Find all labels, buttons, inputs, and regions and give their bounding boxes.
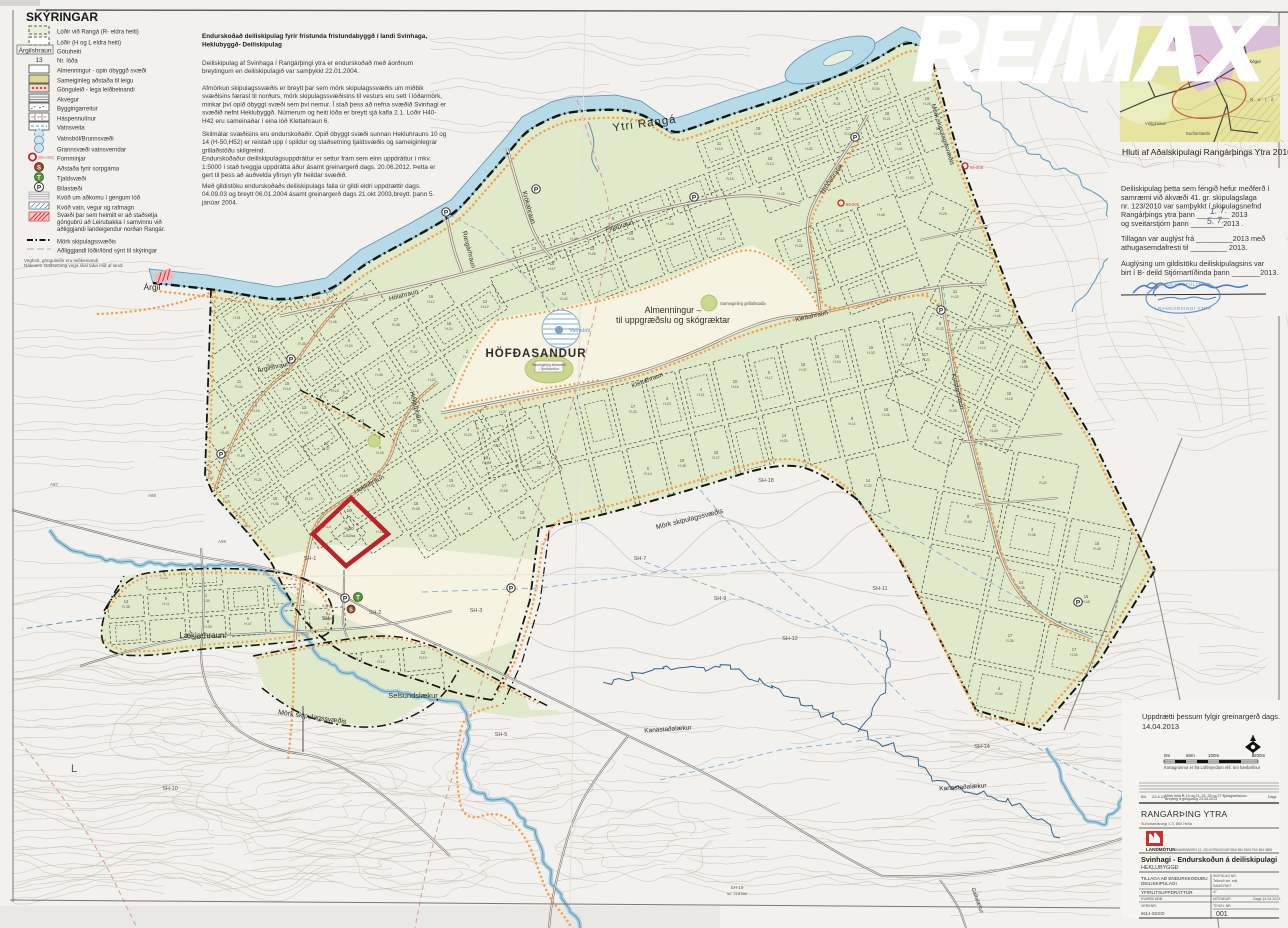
svg-text:12: 12 <box>532 246 537 251</box>
svg-text:SH-18: SH-18 <box>758 478 774 484</box>
svg-text:16: 16 <box>447 321 452 326</box>
svg-text:A88: A88 <box>218 539 227 544</box>
svg-text:H-16: H-16 <box>731 385 738 389</box>
svg-text:Vatnsból/Brunnsvæði: Vatnsból/Brunnsvæði <box>57 136 114 143</box>
svg-text:R-23: R-23 <box>269 433 276 437</box>
svg-text:SH-14: SH-14 <box>974 744 990 750</box>
svg-text:17: 17 <box>495 438 500 443</box>
svg-text:A88: A88 <box>148 493 157 498</box>
svg-text:P: P <box>37 185 42 192</box>
svg-text:R-18: R-18 <box>500 489 507 493</box>
svg-text:16: 16 <box>1095 541 1100 546</box>
svg-text:13: 13 <box>35 57 43 64</box>
svg-text:H-29: H-29 <box>527 436 534 440</box>
svg-text:H-32: H-32 <box>867 351 874 355</box>
svg-text:R-34: R-34 <box>872 87 879 91</box>
svg-text:H-33: H-33 <box>1070 653 1077 657</box>
svg-text:5. 7.: 5. 7. <box>1206 215 1224 226</box>
svg-text:VERKNR.: VERKNR. <box>1141 904 1157 908</box>
svg-text:14: 14 <box>252 334 257 339</box>
svg-text:Suðurlandsvegi 1-3, 850 Hella: Suðurlandsvegi 1-3, 850 Hella <box>1141 821 1193 826</box>
svg-text:11: 11 <box>953 289 958 294</box>
svg-text:R-19: R-19 <box>419 656 426 660</box>
svg-text:R-32: R-32 <box>936 327 943 331</box>
svg-text:17: 17 <box>1008 633 1013 638</box>
svg-text:16: 16 <box>714 450 719 455</box>
svg-text:Árgil: Árgil <box>143 282 160 292</box>
svg-text:Vatnsveita: Vatnsveita <box>57 126 85 132</box>
svg-text:R-13: R-13 <box>766 162 773 166</box>
svg-text:R-48: R-48 <box>392 323 399 327</box>
svg-text:R-38: R-38 <box>122 605 129 609</box>
svg-text:Árgilshraun: Árgilshraun <box>19 46 52 55</box>
svg-text:Lækjarhraun:: Lækjarhraun: <box>179 631 226 640</box>
svg-text:14: 14 <box>562 291 567 296</box>
svg-text:SH-3: SH-3 <box>470 608 483 614</box>
svg-text:H-36: H-36 <box>271 502 278 506</box>
svg-text:R-14: R-14 <box>644 472 651 476</box>
svg-text:Grannsvæði vatnsverndar: Grannsvæði vatnsverndar <box>57 147 126 154</box>
svg-text:grillaðstöðu skilgreind.: grillaðstöðu skilgreind. <box>202 146 265 154</box>
svg-text:R-18: R-18 <box>283 387 290 391</box>
svg-text:H-40: H-40 <box>990 429 997 433</box>
svg-text:Kvöð um aðkomu í gengum lóð: Kvöð um aðkomu í gengum lóð <box>57 195 141 202</box>
svg-text:16: 16 <box>795 111 800 116</box>
svg-text:S: S <box>349 608 353 614</box>
svg-text:R-32: R-32 <box>864 484 871 488</box>
svg-text:Mörk skipulagssvæðis: Mörk skipulagssvæðis <box>57 239 116 246</box>
svg-text:H-33: H-33 <box>204 625 211 629</box>
svg-text:og sveitarstjórn þann _____: og sveitarstjórn þann ________2013 . <box>1121 219 1244 228</box>
svg-text:Nákvæm staðsetning vega skal t: Nákvæm staðsetning vega skal taka mið af… <box>24 262 123 268</box>
svg-text:R-11: R-11 <box>844 132 851 136</box>
svg-text:H-47: H-47 <box>244 622 251 626</box>
svg-text:R-27: R-27 <box>712 456 719 460</box>
svg-text:H-15: H-15 <box>1005 397 1012 401</box>
svg-text:(99-008): (99-008) <box>38 155 55 160</box>
svg-text:14: 14 <box>874 81 879 86</box>
svg-text:17: 17 <box>728 171 733 176</box>
svg-text:H-32: H-32 <box>805 147 812 151</box>
svg-text:11: 11 <box>237 379 242 384</box>
svg-text:HÖFÐASANDUR: HÖFÐASANDUR <box>485 347 586 360</box>
svg-text:11: 11 <box>797 238 802 243</box>
svg-text:H-24: H-24 <box>922 358 929 362</box>
svg-text:12: 12 <box>995 308 1000 313</box>
svg-text:H-37: H-37 <box>499 410 506 414</box>
svg-text:001: 001 <box>1216 911 1228 918</box>
svg-text:H-45: H-45 <box>376 451 383 455</box>
svg-text:17: 17 <box>1072 647 1077 652</box>
svg-text:janúar 2004.: janúar 2004. <box>201 199 238 206</box>
svg-text:Svæði þar sem heimilt er að st: Svæði þar sem heimilt er að staðsetja <box>57 212 158 219</box>
svg-text:H-26: H-26 <box>882 413 889 417</box>
svg-text:R-42: R-42 <box>235 385 242 389</box>
svg-text:A87: A87 <box>50 482 59 487</box>
svg-text:H-41: H-41 <box>895 147 902 151</box>
svg-text:14: 14 <box>866 478 871 483</box>
svg-text:RANGÁRÞING YTRA: RANGÁRÞING YTRA <box>1141 809 1228 819</box>
svg-text:15: 15 <box>449 478 454 483</box>
svg-text:SH-7: SH-7 <box>634 556 647 562</box>
svg-text:04.09.03 og breytt 06.01.2004: 04.09.03 og breytt 06.01.2004 ásamt grei… <box>202 190 435 198</box>
svg-text:gert til þess að auðvelda yfir: gert til þess að auðvelda yfirsyn yfir h… <box>202 171 347 179</box>
svg-text:Háspennulínur: Háspennulínur <box>57 117 96 123</box>
svg-text:Tjaldsvæði: Tjaldsvæði <box>57 176 86 183</box>
svg-text:14 (H-50,H52) er reistað upp í: 14 (H-50,H52) er reistað upp í spildur o… <box>202 138 438 146</box>
svg-text:svæðið nefnt Heklubyggð. Númer: svæðið nefnt Heklubyggð. Númerum og heit… <box>202 109 436 117</box>
svg-text:Almenningur –: Almenningur – <box>645 305 702 315</box>
svg-text:Sameiginleg aðstaða til leigu: Sameiginleg aðstaða til leigu <box>57 78 133 85</box>
svg-text:Uppdrætti þessum fylgir greina: Uppdrætti þessum fylgir greinargerð dags… <box>1142 712 1280 721</box>
svg-text:SAMSYNKT: SAMSYNKT <box>1213 884 1232 888</box>
svg-text:R-25: R-25 <box>939 212 946 216</box>
svg-text:H-17: H-17 <box>548 267 555 271</box>
svg-text:Heklubyggð- Deiliskipulag: Heklubyggð- Deiliskipulag <box>202 40 282 48</box>
svg-text:0,8ha: 0,8ha <box>322 603 333 608</box>
svg-text:SH-12: SH-12 <box>782 636 798 642</box>
svg-text:H-48: H-48 <box>1082 600 1089 604</box>
svg-text:L: L <box>71 763 77 775</box>
svg-text:SH-19: SH-19 <box>731 885 744 890</box>
svg-text:Auglýsing um gildistöku deilis: Auglýsing um gildistöku deiliskipulagsin… <box>1121 259 1265 268</box>
svg-text:H-20: H-20 <box>780 439 787 443</box>
svg-text:Gönguleið - lega leiðbeinandi: Gönguleið - lega leiðbeinandi <box>57 87 135 94</box>
svg-text:B4: B4 <box>1141 794 1147 799</box>
svg-text:18: 18 <box>884 407 889 412</box>
svg-text:H-48: H-48 <box>666 222 673 226</box>
svg-text:athugasemdafresti til ________: athugasemdafresti til _________ 2013. <box>1121 243 1247 252</box>
svg-text:Lóðir (H og L eldra heiti): Lóðir (H og L eldra heiti) <box>57 40 121 47</box>
svg-text:R-36: R-36 <box>1006 639 1013 643</box>
svg-text:H-24: H-24 <box>345 344 352 348</box>
svg-text:H-32: H-32 <box>951 295 958 299</box>
svg-text:T: T <box>356 596 360 602</box>
svg-text:H-20: H-20 <box>447 484 454 488</box>
svg-text:Dags: Dags <box>1268 795 1277 799</box>
svg-text:H-18: H-18 <box>393 401 400 405</box>
svg-text:1:5000 í stað tveggja uppdrát: 1:5000 í stað tveggja uppdrátta áður ása… <box>202 163 436 171</box>
svg-text:Kortagrunnur er frá Loftmyndum: Kortagrunnur er frá Loftmyndum ehf. 5m h… <box>1164 765 1261 770</box>
svg-text:R-43: R-43 <box>221 431 228 435</box>
svg-text:T: T <box>37 176 41 182</box>
svg-text:Aðstaða fyrir sorpgáma: Aðstaða fyrir sorpgáma <box>57 166 120 173</box>
svg-text:R-30: R-30 <box>836 229 843 233</box>
svg-text:R-20: R-20 <box>629 410 636 414</box>
svg-text:R-35: R-35 <box>934 441 941 445</box>
svg-text:H-14: H-14 <box>833 360 840 364</box>
svg-text:200m: 200m <box>1254 753 1266 758</box>
svg-text:H-11: H-11 <box>162 602 169 606</box>
svg-text:H-21: H-21 <box>697 393 704 397</box>
svg-text:TEIKN. NR: TEIKN. NR <box>1213 904 1231 908</box>
svg-text:R-34: R-34 <box>995 692 1002 696</box>
svg-text:Bílastæði: Bílastæði <box>57 186 82 193</box>
svg-text:15: 15 <box>835 354 840 359</box>
svg-text:úT: úT <box>1213 890 1217 894</box>
svg-text:H-22: H-22 <box>428 378 435 382</box>
svg-text:R-15: R-15 <box>331 389 338 393</box>
svg-text:18: 18 <box>1022 359 1027 364</box>
svg-text:10: 10 <box>733 379 738 384</box>
svg-text:R-15: R-15 <box>726 177 733 181</box>
svg-text:15: 15 <box>756 126 761 131</box>
svg-text:H-11: H-11 <box>848 422 855 426</box>
svg-text:18: 18 <box>885 111 890 116</box>
svg-text:H-23: H-23 <box>663 402 670 406</box>
svg-text:14: 14 <box>782 433 787 438</box>
svg-text:23.4.13: 23.4.13 <box>1152 794 1166 799</box>
svg-text:Selsundslækur: Selsundslækur <box>388 691 438 700</box>
svg-text:Tillagan var auglýst frá _____: Tillagan var auglýst frá _________2013 m… <box>1121 234 1265 243</box>
svg-text:P: P <box>219 451 224 458</box>
svg-text:12: 12 <box>537 460 542 465</box>
svg-text:H42 eru sameinaðar í eina lóð: H42 eru sameinaðar í eina lóð Klettahrau… <box>202 117 329 125</box>
svg-text:H-16: H-16 <box>252 409 259 413</box>
svg-text:H-46: H-46 <box>877 213 884 217</box>
svg-text:H-44: H-44 <box>793 117 800 121</box>
svg-text:R-12: R-12 <box>377 660 384 664</box>
svg-text:R-28: R-28 <box>254 478 261 482</box>
svg-text:Nr. lóða: Nr. lóða <box>57 58 78 65</box>
svg-text:Aðliggjandi lóðir/lönd sýnt ti: Aðliggjandi lóðir/lönd sýnt til skýringa… <box>57 248 157 255</box>
svg-text:R-31: R-31 <box>627 237 634 241</box>
svg-text:R-21: R-21 <box>883 117 890 121</box>
svg-text:R-38: R-38 <box>298 342 305 346</box>
svg-text:Teiknuð sbr. mkl: Teiknuð sbr. mkl <box>1213 878 1238 883</box>
svg-text:12: 12 <box>483 299 488 304</box>
svg-text:Rangárþings ytra þann ________: Rangárþings ytra þann ________ 2013 <box>1121 210 1248 219</box>
svg-text:R-28: R-28 <box>412 507 419 511</box>
svg-text:18: 18 <box>550 261 555 266</box>
svg-text:10: 10 <box>346 508 352 513</box>
svg-text:H-17: H-17 <box>765 376 772 380</box>
svg-text:10: 10 <box>324 441 329 446</box>
svg-text:P: P <box>692 194 697 201</box>
svg-text:R-39: R-39 <box>237 454 244 458</box>
svg-text:17: 17 <box>631 404 636 409</box>
svg-text:KVARÐI AÐB: KVARÐI AÐB <box>1141 897 1163 901</box>
svg-text:LANDMÓTUN: LANDMÓTUN <box>1146 845 1176 852</box>
svg-text:14: 14 <box>124 599 129 604</box>
svg-text:H-15: H-15 <box>715 147 722 151</box>
svg-text:R-19: R-19 <box>305 497 312 501</box>
svg-text:Almenningur - opin óbyggð svæð: Almenningur - opin óbyggð svæði <box>57 68 146 75</box>
svg-text:H-42: H-42 <box>560 297 567 301</box>
svg-text:13: 13 <box>590 246 595 251</box>
svg-text:Vatnsból: Vatnsból <box>569 328 590 334</box>
svg-text:R-32: R-32 <box>410 350 417 354</box>
svg-text:P: P <box>343 595 348 602</box>
svg-text:Svinhagi - Endurskoðun á deili: Svinhagi - Endurskoðun á deiliskipulagi <box>1141 855 1277 864</box>
svg-text:H-19: H-19 <box>340 474 347 478</box>
svg-text:MÓTAÐUR: MÓTAÐUR <box>1213 896 1231 901</box>
svg-text:Götuheiti: Götuheiti <box>57 50 81 56</box>
svg-text:99-005: 99-005 <box>846 202 860 207</box>
svg-text:H-46: H-46 <box>329 320 336 324</box>
svg-text:R-45: R-45 <box>588 252 595 256</box>
svg-text:Afmörkun skipulagssvæðis er br: Afmörkun skipulagssvæðis er breytt þar s… <box>202 84 424 92</box>
svg-text:13: 13 <box>302 405 307 410</box>
svg-text:DEILISKIPULAGI: DEILISKIPULAGI <box>1141 881 1177 886</box>
svg-text:Endurskoðað deiliskipulag fyri: Endurskoðað deiliskipulag fyrir fristund… <box>202 32 427 40</box>
svg-text:17: 17 <box>394 317 399 322</box>
svg-text:15: 15 <box>980 340 985 345</box>
svg-text:samræmi við ákvæði 41. gr. ski: samræmi við ákvæði 41. gr. skipulagslaga <box>1121 193 1258 202</box>
svg-text:Kvöð vatn, vegur og rafmagn: Kvöð vatn, vegur og rafmagn <box>57 205 134 212</box>
svg-text:P: P <box>444 209 449 216</box>
svg-text:Skilmálar svæðisins eru endurs: Skilmálar svæðisins eru endurskoðaðir. O… <box>202 130 447 138</box>
svg-text:H-22: H-22 <box>465 512 472 516</box>
svg-text:SH-2: SH-2 <box>369 610 382 616</box>
svg-text:R-20: R-20 <box>464 433 471 437</box>
svg-text:17: 17 <box>225 494 230 499</box>
svg-text:R-37: R-37 <box>754 132 761 136</box>
svg-text:HEKLUBYGGÐ: HEKLUBYGGÐ <box>1141 865 1179 871</box>
svg-text:11: 11 <box>992 423 997 428</box>
svg-text:aðliggjandi landeigendur norða: aðliggjandi landeigendur norðan Rangár. <box>57 226 165 233</box>
svg-text:S: S <box>37 166 41 172</box>
svg-text:14: 14 <box>1019 580 1024 585</box>
svg-text:H-37: H-37 <box>799 368 806 372</box>
svg-text:breytingum en deiliskipulagið: breytingum en deiliskipulagið var samþyk… <box>202 67 359 75</box>
svg-text:SH-5: SH-5 <box>495 732 508 738</box>
svg-text:Akvegur: Akvegur <box>57 98 79 104</box>
svg-text:P: P <box>289 356 294 363</box>
svg-text:Breyting á göngustíg 23.04.201: Breyting á göngustíg 23.04.2013 <box>1165 797 1217 801</box>
svg-text:H-10: H-10 <box>411 429 418 433</box>
svg-text:16: 16 <box>801 362 806 367</box>
svg-text:göngubrú að Leirubakka í samvi: göngubrú að Leirubakka í samvinnu við <box>57 219 162 226</box>
svg-text:Hluti af Aðalskipulagi Rangárþ: Hluti af Aðalskipulagi Rangárþings Ytra … <box>1122 147 1288 157</box>
svg-text:Með gildistöku endurskoðaðs de: Með gildistöku endurskoðaðs deiliskipula… <box>202 182 421 190</box>
svg-text:til uppgræðslu og skógræktar: til uppgræðslu og skógræktar <box>616 315 730 325</box>
svg-text:H-39: H-39 <box>429 534 436 538</box>
svg-text:lnr. 218366: lnr. 218366 <box>727 891 748 896</box>
svg-text:Sameiginleg grillaðstaða: Sameiginleg grillaðstaða <box>720 301 766 306</box>
svg-text:6614-SDXID: 6614-SDXID <box>1141 911 1165 916</box>
svg-text:H-46: H-46 <box>518 516 525 520</box>
svg-text:- Íþróttavöllur: - Íþróttavöllur <box>539 367 560 371</box>
svg-text:H-14: H-14 <box>978 346 985 350</box>
svg-text:SKIPULAG NR.: SKIPULAG NR. <box>1213 874 1237 878</box>
svg-text:H-11: H-11 <box>901 343 908 347</box>
svg-text:R-22: R-22 <box>795 244 802 248</box>
svg-text:H-45: H-45 <box>340 396 347 400</box>
svg-text:R-45: R-45 <box>1093 547 1100 551</box>
svg-text:R-37: R-37 <box>322 447 329 451</box>
svg-text:minkar því opið óbyggt svæði s: minkar því opið óbyggt svæði sem því nem… <box>202 99 447 108</box>
svg-text:18: 18 <box>629 231 634 236</box>
svg-text:R-26: R-26 <box>964 520 971 524</box>
svg-text:R-28: R-28 <box>949 409 956 413</box>
svg-text:RE/MAX: RE/MAX <box>914 0 1267 98</box>
svg-text:Byggingarreitur: Byggingarreitur <box>57 107 98 113</box>
svg-text:Í RANGÁRÞINGI YTRA: Í RANGÁRÞINGI YTRA <box>1154 305 1212 311</box>
svg-text:Deiliskipulag þetta sem fengið: Deiliskipulag þetta sem fengið hefur með… <box>1121 184 1269 193</box>
svg-text:18: 18 <box>414 501 419 506</box>
svg-text:18: 18 <box>768 156 773 161</box>
svg-text:HAMRABORG 12, 200 KÓPAVOGUR S: HAMRABORG 12, 200 KÓPAVOGUR SÍMI 554 530… <box>1176 847 1272 852</box>
svg-text:17: 17 <box>502 483 507 488</box>
svg-text:SH-9: SH-9 <box>714 596 727 602</box>
svg-text:H-46: H-46 <box>993 314 1000 318</box>
svg-text:16: 16 <box>429 294 434 299</box>
svg-text:14.04.2013: 14.04.2013 <box>1142 722 1179 731</box>
svg-text:H-48: H-48 <box>678 464 685 468</box>
svg-text:svæðisins færast til norðurs,: svæðisins færast til norðurs, mörk skipu… <box>202 92 442 100</box>
svg-text:H-23: H-23 <box>300 411 307 415</box>
svg-text:15: 15 <box>273 496 278 501</box>
svg-text:SKÝRINGAR: SKÝRINGAR <box>26 9 98 24</box>
svg-text:11: 11 <box>717 141 722 146</box>
svg-text:12: 12 <box>360 418 365 423</box>
svg-text:H-33: H-33 <box>906 176 913 180</box>
svg-text:SH-10: SH-10 <box>162 786 178 792</box>
svg-text:Dags 14.04.2013: Dags 14.04.2013 <box>1253 897 1280 901</box>
svg-text:P: P <box>509 585 514 592</box>
svg-text:Fornminjar: Fornminjar <box>57 157 86 163</box>
svg-text:H-12: H-12 <box>427 300 434 304</box>
svg-text:19: 19 <box>680 458 685 463</box>
svg-text:YFIRLITSUPPDRÁTTUR: YFIRLITSUPPDRÁTTUR <box>1141 889 1193 895</box>
svg-text:P: P <box>534 186 539 193</box>
svg-text:H-28: H-28 <box>807 276 814 280</box>
svg-text:H-12: H-12 <box>481 305 488 309</box>
svg-text:15: 15 <box>1084 594 1089 599</box>
svg-text:H-35: H-35 <box>1020 365 1027 369</box>
svg-text:H-24: H-24 <box>445 327 452 331</box>
svg-text:Deiliskipulag af Svinhaga í Ra: Deiliskipulag af Svinhaga í Rangárþingi … <box>202 59 413 67</box>
svg-text:50m: 50m <box>1186 753 1195 758</box>
svg-text:R-22: R-22 <box>1039 481 1046 485</box>
svg-text:SH-4: SH-4 <box>322 616 335 622</box>
svg-text:H-33: H-33 <box>312 296 319 300</box>
svg-text:99-008: 99-008 <box>970 165 984 170</box>
svg-text:1,62ha: 1,62ha <box>343 533 356 538</box>
svg-text:R-36: R-36 <box>1028 533 1035 537</box>
svg-text:SKIPULAGSFULLTRÚÍ: SKIPULAGSFULLTRÚÍ <box>1155 281 1211 287</box>
svg-text:17: 17 <box>846 126 851 131</box>
svg-text:Lóðir við Rangá (R- eldra heit: Lóðir við Rangá (R- eldra heiti) <box>57 29 139 36</box>
svg-text:H-48: H-48 <box>777 192 784 196</box>
svg-text:17: 17 <box>924 352 929 357</box>
svg-text:H-50: H-50 <box>344 526 354 531</box>
svg-text:R-27: R-27 <box>493 444 500 448</box>
svg-text:H-13: H-13 <box>717 237 724 241</box>
svg-text:18: 18 <box>1007 391 1012 396</box>
svg-text:Endurskoðaður deiliskipulagsup: Endurskoðaður deiliskipulagsuppdráttur e… <box>202 155 431 163</box>
svg-text:H-31: H-31 <box>233 316 240 320</box>
svg-text:Viðkuhraun: Viðkuhraun <box>1145 121 1167 126</box>
svg-text:P: P <box>853 134 858 141</box>
svg-text:SH-1: SH-1 <box>304 556 317 562</box>
svg-text:100m: 100m <box>1208 753 1220 758</box>
svg-text:R-18: R-18 <box>250 340 257 344</box>
svg-text:12: 12 <box>421 650 426 655</box>
svg-text:P: P <box>1076 599 1081 606</box>
svg-text:15: 15 <box>285 381 290 386</box>
svg-text:R-31: R-31 <box>833 102 840 106</box>
svg-text:10: 10 <box>520 510 525 515</box>
svg-text:P: P <box>939 307 944 314</box>
svg-text:0m: 0m <box>1164 753 1171 758</box>
svg-text:SH-11: SH-11 <box>872 586 887 592</box>
svg-text:14: 14 <box>897 141 902 146</box>
svg-text:Burðarstæðir: Burðarstæðir <box>1186 131 1211 136</box>
svg-text:birt í B- deild Stjórnartíðind: birt í B- deild Stjórnartíðinda þann ___… <box>1121 268 1278 277</box>
svg-text:16: 16 <box>869 345 874 350</box>
